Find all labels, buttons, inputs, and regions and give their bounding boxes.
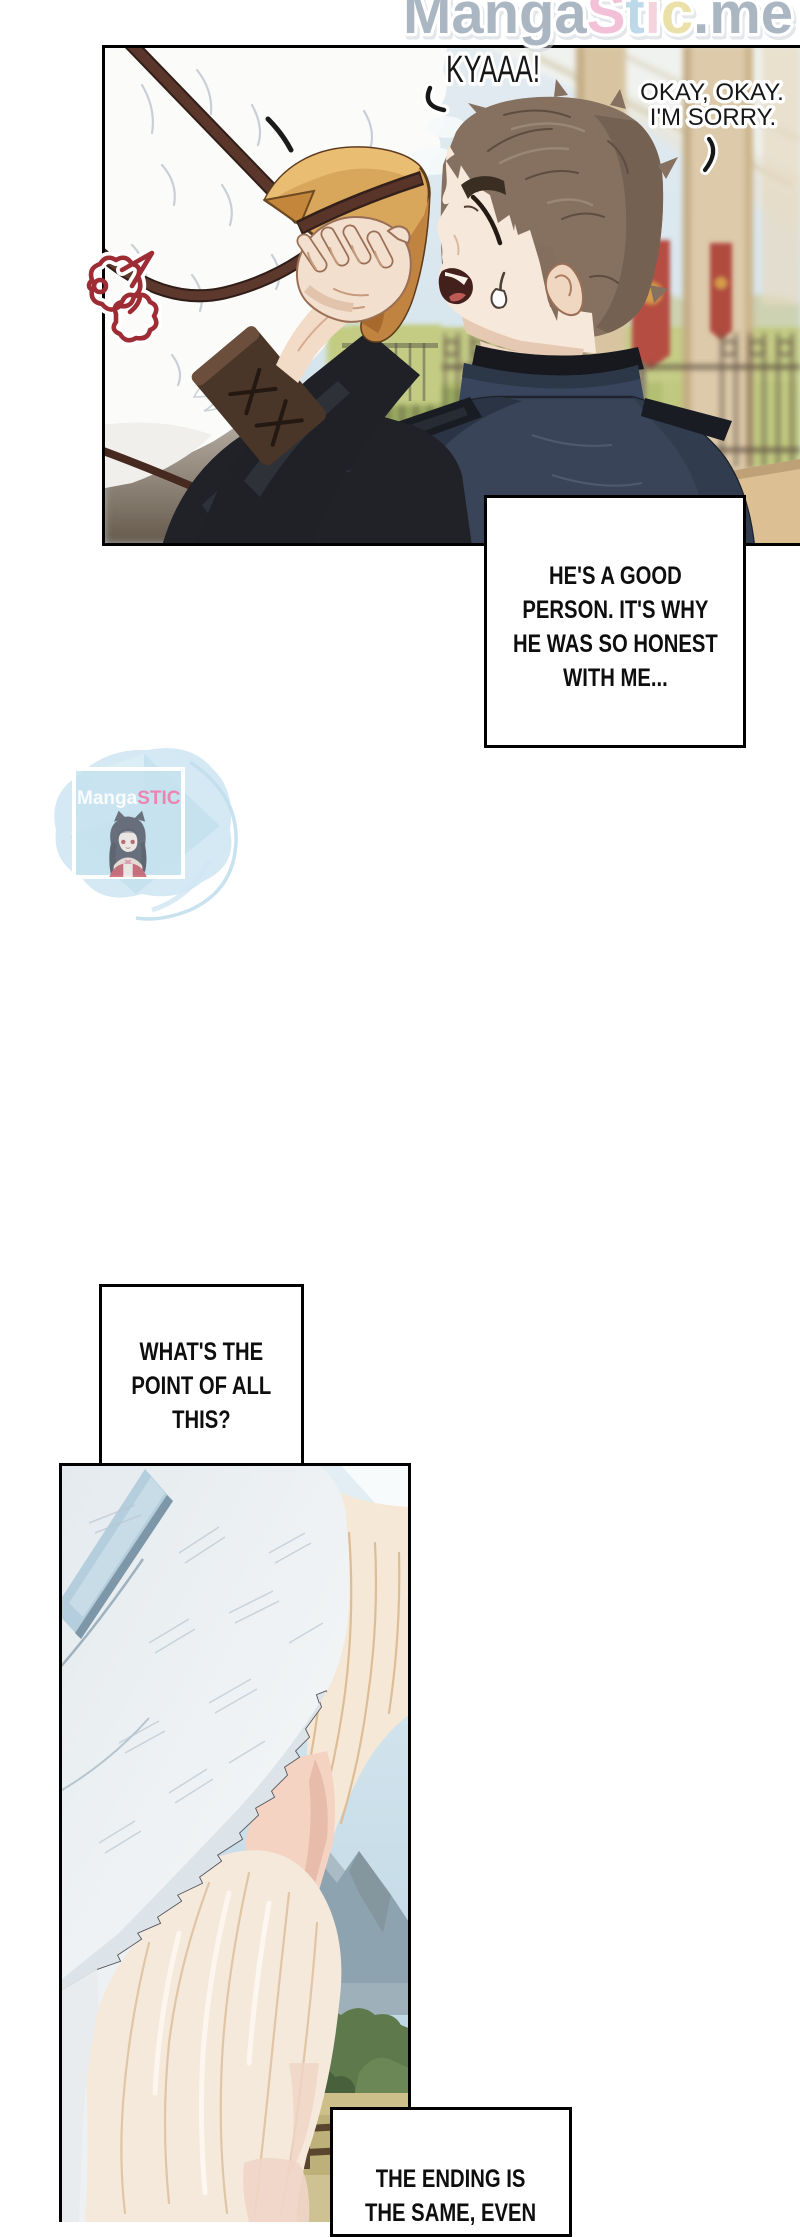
- svg-text:I'M SORRY.: I'M SORRY.: [650, 104, 776, 131]
- svg-text:MangaStic.me: MangaStic.me: [403, 0, 793, 46]
- svg-text:MangaSTIC: MangaSTIC: [77, 788, 181, 809]
- svg-text:OKAY, OKAY.: OKAY, OKAY.: [640, 79, 784, 106]
